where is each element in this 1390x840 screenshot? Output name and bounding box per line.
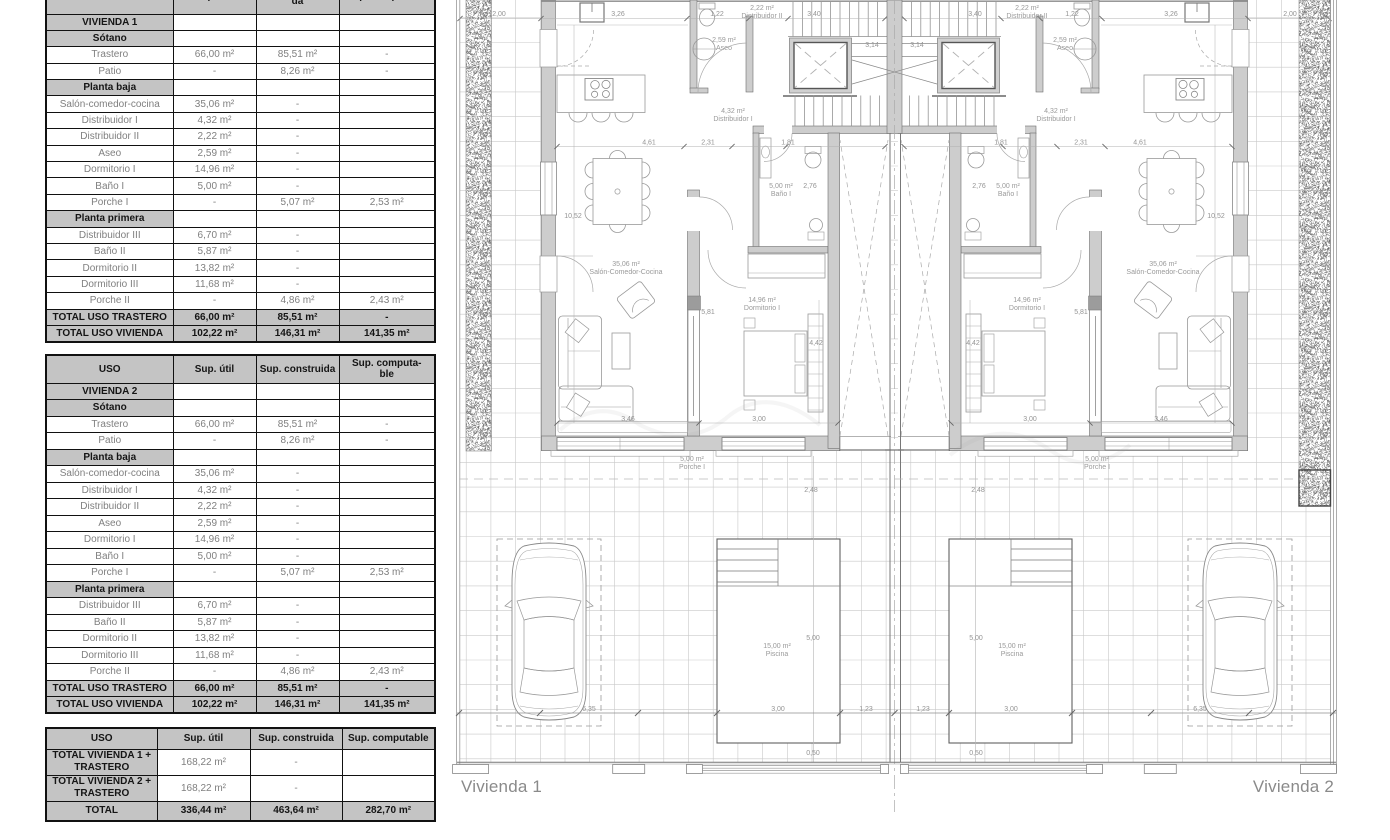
svg-text:4,61: 4,61: [1133, 140, 1147, 147]
svg-text:4,42: 4,42: [809, 340, 823, 347]
svg-text:2,48: 2,48: [971, 487, 985, 494]
svg-text:10,52: 10,52: [564, 213, 582, 220]
svg-text:5,00: 5,00: [969, 635, 983, 642]
svg-text:5,00 m²Porche I: 5,00 m²Porche I: [1084, 456, 1110, 471]
svg-text:3,40: 3,40: [968, 11, 982, 18]
svg-text:2,76: 2,76: [803, 183, 817, 190]
svg-text:3,14: 3,14: [910, 42, 924, 49]
svg-text:5,00 m²Porche I: 5,00 m²Porche I: [679, 456, 705, 471]
svg-text:3,00: 3,00: [771, 706, 785, 713]
svg-text:3,26: 3,26: [611, 11, 625, 18]
svg-text:3,00: 3,00: [752, 416, 766, 423]
svg-text:Vivienda 2: Vivienda 2: [1253, 777, 1334, 796]
svg-text:5,81: 5,81: [1074, 309, 1088, 316]
svg-text:4,61: 4,61: [642, 140, 656, 147]
svg-text:5,00: 5,00: [806, 635, 820, 642]
svg-text:2,31: 2,31: [701, 140, 715, 147]
svg-text:3,26: 3,26: [1164, 11, 1178, 18]
svg-text:14,96 m²Dormitorio I: 14,96 m²Dormitorio I: [1009, 297, 1045, 312]
svg-text:3,14: 3,14: [865, 42, 879, 49]
svg-text:14,96 m²Dormitorio I: 14,96 m²Dormitorio I: [744, 297, 780, 312]
svg-text:5,81: 5,81: [701, 309, 715, 316]
svg-text:3,46: 3,46: [1154, 416, 1168, 423]
svg-text:2,31: 2,31: [1074, 140, 1088, 147]
svg-text:5,00 m²Baño I: 5,00 m²Baño I: [996, 183, 1020, 198]
svg-text:10,52: 10,52: [1207, 213, 1225, 220]
svg-text:3,46: 3,46: [621, 416, 635, 423]
svg-text:5,00 m²Baño I: 5,00 m²Baño I: [769, 183, 793, 198]
svg-text:3,00: 3,00: [1023, 416, 1037, 423]
svg-text:1,81: 1,81: [994, 140, 1008, 147]
svg-text:1,22: 1,22: [710, 11, 724, 18]
svg-text:0,50: 0,50: [969, 750, 983, 757]
svg-text:4,42: 4,42: [966, 340, 980, 347]
svg-text:2,00: 2,00: [1283, 11, 1297, 18]
svg-text:6,35: 6,35: [1193, 706, 1207, 713]
svg-text:2,76: 2,76: [972, 183, 986, 190]
svg-text:1,23: 1,23: [916, 706, 930, 713]
svg-text:15,00 m²Piscina: 15,00 m²Piscina: [998, 643, 1026, 658]
svg-text:3,00: 3,00: [1004, 706, 1018, 713]
svg-text:3,40: 3,40: [807, 11, 821, 18]
svg-text:Vivienda 1: Vivienda 1: [461, 777, 542, 796]
svg-text:2,00: 2,00: [492, 11, 506, 18]
svg-text:1,22: 1,22: [1065, 11, 1079, 18]
svg-text:1,23: 1,23: [859, 706, 873, 713]
svg-text:2,48: 2,48: [804, 487, 818, 494]
svg-text:1,81: 1,81: [781, 140, 795, 147]
svg-text:15,00 m²Piscina: 15,00 m²Piscina: [763, 643, 791, 658]
svg-text:6,35: 6,35: [582, 706, 596, 713]
svg-text:0,50: 0,50: [806, 750, 820, 757]
